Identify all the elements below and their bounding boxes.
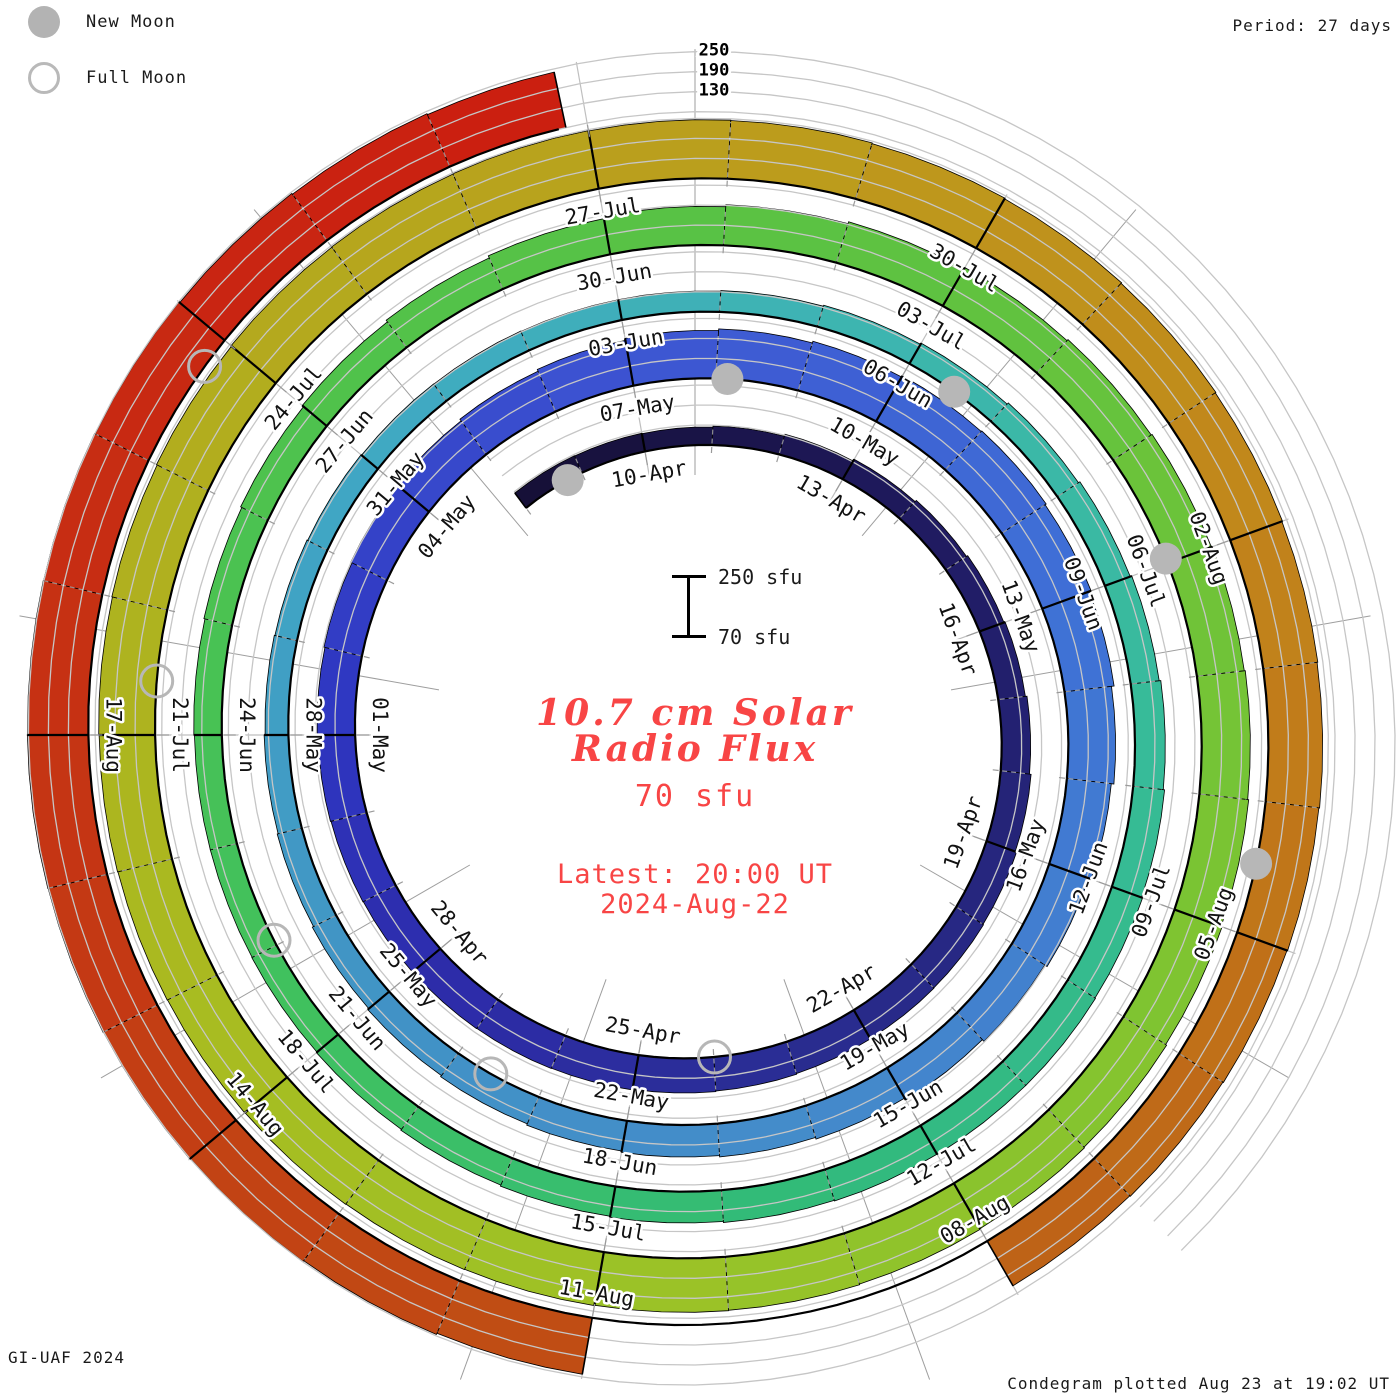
day-tick — [364, 657, 370, 658]
day-tick — [1255, 669, 1261, 670]
day-tick — [1189, 677, 1195, 678]
period-label: Period: 27 days — [1233, 16, 1393, 35]
day-tick — [1057, 692, 1063, 693]
latest-time: Latest: 20:00 UT — [345, 860, 1045, 890]
day-tick — [847, 998, 853, 1008]
full-moon-marker — [475, 1058, 507, 1090]
condegram-page: 10-Apr13-Apr16-Apr19-Apr22-Apr25-Apr28-A… — [0, 0, 1400, 1400]
day-tick — [1224, 928, 1235, 932]
day-tick — [487, 456, 491, 461]
flux-bar — [899, 500, 966, 570]
day-tick — [566, 1028, 568, 1034]
new-moon-label: New Moon — [86, 12, 176, 32]
current-flux-value: 70 sfu — [345, 779, 1045, 814]
full-moon-label: Full Moon — [86, 68, 187, 88]
flux-bar — [724, 205, 849, 263]
day-tick — [499, 993, 503, 998]
scale-bottom-label: 70 sfu — [718, 625, 790, 649]
full-moon-marker — [141, 665, 173, 697]
day-tick — [1099, 882, 1110, 886]
new-moon-marker — [552, 464, 584, 496]
new-moon-marker — [938, 376, 970, 408]
full-moon-marker — [258, 924, 290, 956]
flux-bar — [621, 1121, 719, 1157]
scale-bar-line — [687, 575, 690, 638]
radial-axis-tick-label: 190 — [699, 61, 730, 81]
radial-axis-tick-label: 250 — [699, 41, 730, 61]
flux-bar — [386, 258, 503, 348]
chart-title-line1: 10.7 cm Solar — [345, 695, 1045, 731]
radial-axis-tick-label: 130 — [699, 81, 730, 101]
day-tick — [1059, 778, 1065, 779]
date-label: 28-May — [301, 697, 325, 773]
flux-bar — [1197, 671, 1250, 800]
full-moon-icon — [28, 62, 60, 94]
day-tick — [1125, 785, 1131, 786]
new-moon-marker — [1150, 543, 1182, 575]
flux-bar — [527, 1097, 627, 1151]
full-moon-marker — [189, 350, 221, 382]
latest-date: 2024-Aug-22 — [345, 890, 1045, 920]
flux-bar — [1263, 662, 1322, 808]
day-tick — [604, 1238, 606, 1250]
date-label: 30-Jun — [575, 259, 654, 296]
day-tick — [527, 510, 531, 515]
day-tick — [1123, 684, 1129, 685]
credit-label: GI-UAF 2024 — [8, 1348, 125, 1367]
legend-new-moon: New Moon — [28, 6, 176, 38]
day-tick — [973, 836, 984, 840]
date-label: 25-Apr — [603, 1012, 682, 1049]
date-label: 17-Aug — [101, 697, 125, 773]
date-label: 21-Jul — [168, 697, 192, 773]
day-tick — [939, 571, 944, 574]
new-moon-marker — [1240, 848, 1272, 880]
day-tick — [442, 940, 451, 948]
flux-bar — [1131, 681, 1166, 790]
day-tick — [906, 958, 910, 962]
flux-bar — [194, 619, 232, 735]
date-label: 24-Jun — [235, 697, 259, 773]
flux-bar — [642, 427, 713, 451]
flux-scale-bar: 250 sfu 70 sfu — [650, 565, 830, 655]
chart-title-block: 10.7 cm Solar Radio Flux 70 sfu — [345, 695, 1045, 814]
day-tick — [616, 1173, 618, 1185]
date-label: 07-May — [598, 390, 677, 427]
radial-axis-labels: 250190130 — [699, 41, 730, 101]
flux-bar — [712, 426, 785, 454]
day-tick — [785, 1034, 787, 1040]
chart-title-line2: Radio Flux — [345, 731, 1045, 767]
day-tick — [777, 456, 779, 462]
day-tick — [627, 1107, 629, 1119]
day-tick — [1258, 801, 1264, 802]
new-moon-marker — [711, 363, 743, 395]
scale-top-label: 250 sfu — [718, 565, 802, 589]
day-tick — [389, 581, 394, 584]
new-moon-icon — [28, 6, 60, 38]
plotted-timestamp: Condegram plotted Aug 23 at 19:02 UT — [1007, 1374, 1390, 1393]
date-label: 10-Apr — [610, 456, 689, 493]
day-tick — [1191, 793, 1197, 794]
day-tick — [894, 520, 898, 524]
full-moon-marker — [699, 1041, 731, 1073]
flux-bar — [725, 1233, 859, 1310]
latest-reading-block: Latest: 20:00 UT 2024-Aug-22 — [345, 860, 1045, 920]
flux-bar — [194, 735, 237, 850]
legend-full-moon: Full Moon — [28, 62, 187, 94]
day-tick — [639, 1041, 641, 1053]
flux-bar — [722, 1169, 835, 1222]
day-tick — [1161, 905, 1172, 909]
flux-bar — [618, 291, 721, 320]
